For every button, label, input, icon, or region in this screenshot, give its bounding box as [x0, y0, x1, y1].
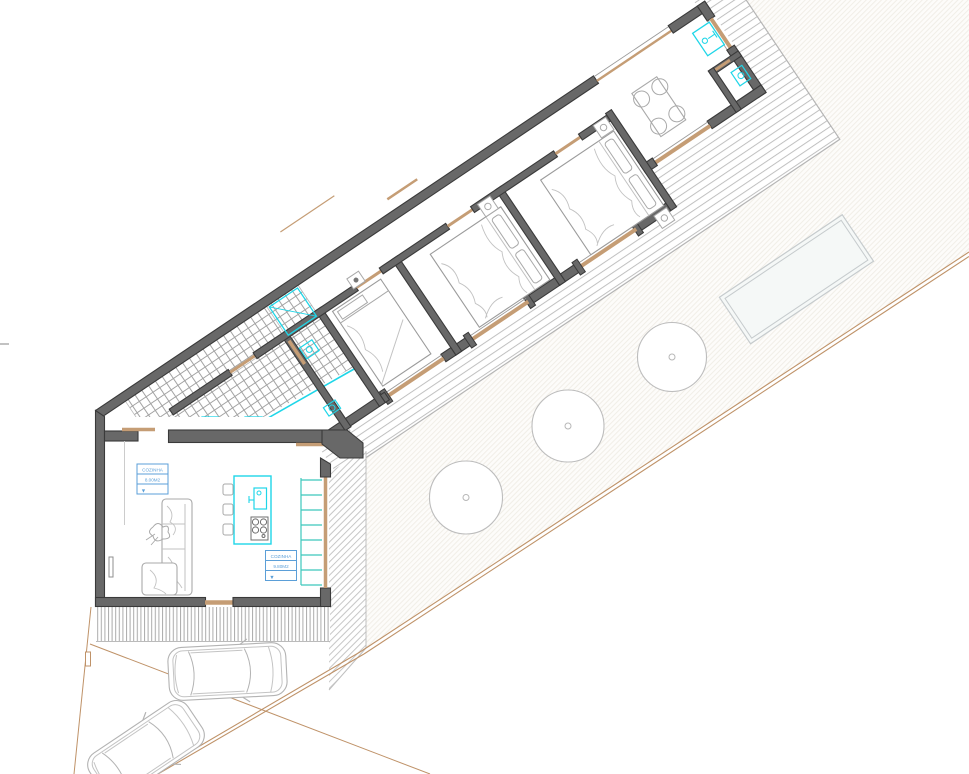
svg-text:▼: ▼ [269, 575, 274, 581]
svg-text:▼: ▼ [141, 488, 146, 494]
svg-text:COZINHA: COZINHA [271, 554, 293, 559]
svg-text:8.00M2: 8.00M2 [145, 478, 161, 483]
svg-text:9.80M2: 9.80M2 [273, 564, 289, 569]
svg-text:COZINHA: COZINHA [142, 468, 164, 473]
